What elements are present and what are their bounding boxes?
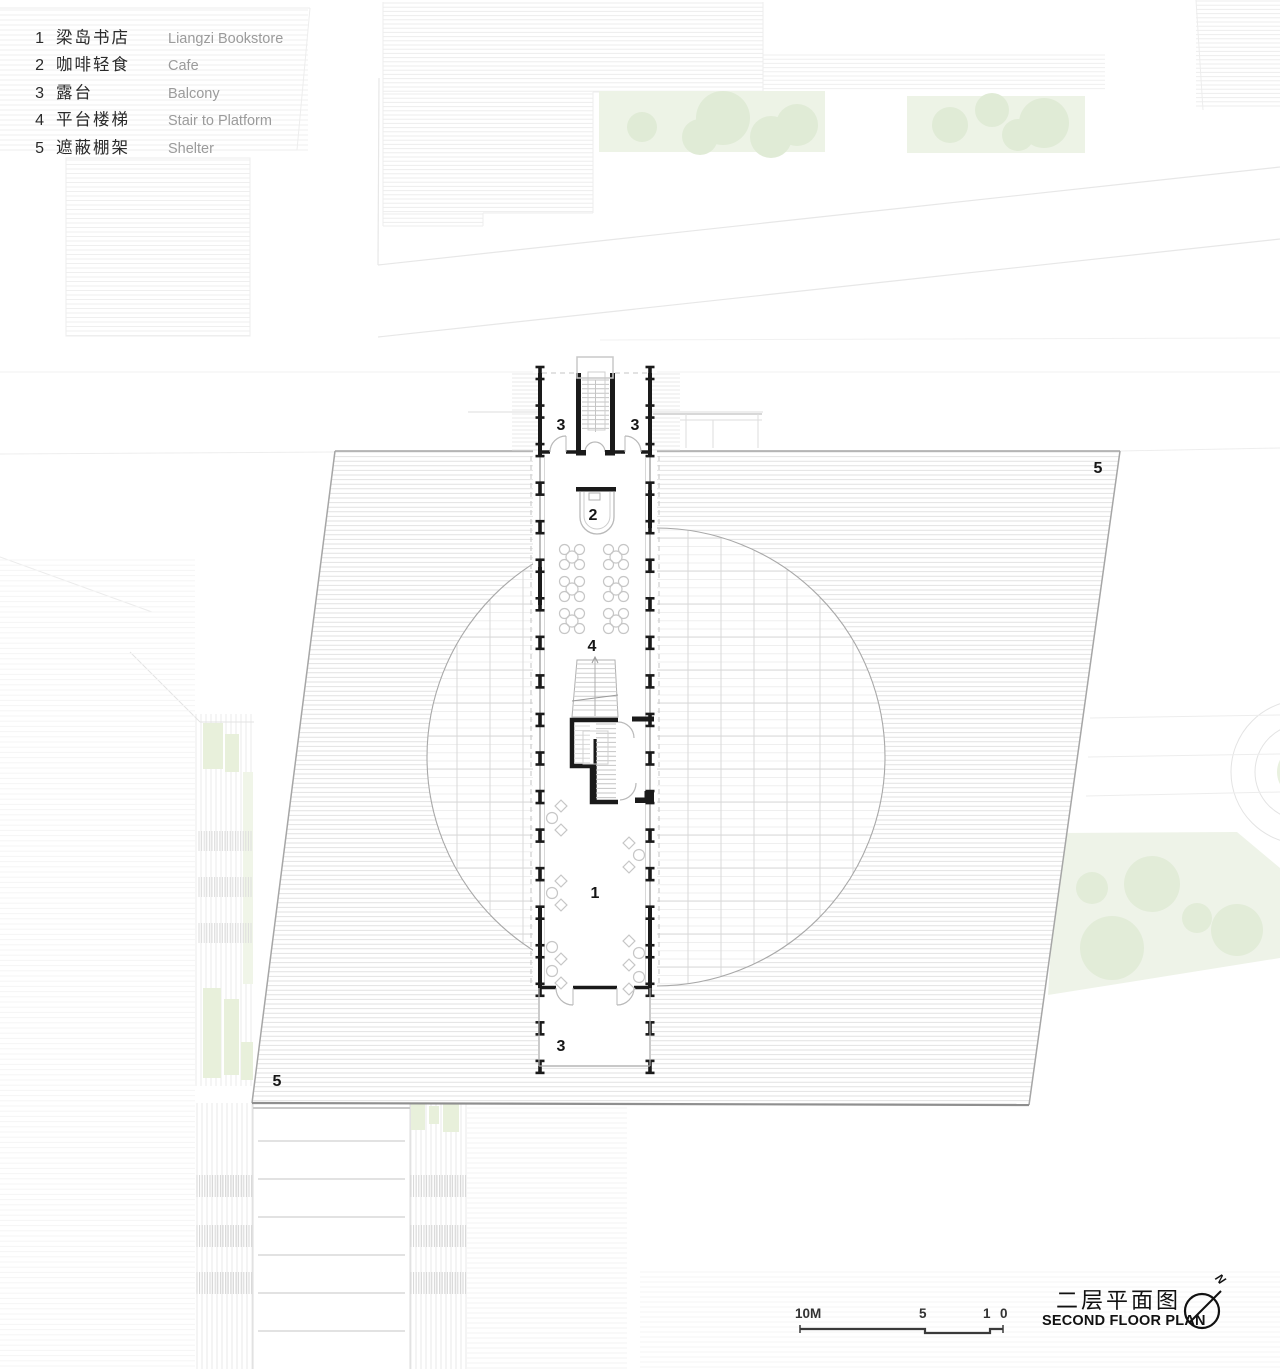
platform-stair (572, 657, 618, 717)
legend-item-english: Cafe (168, 58, 199, 74)
plan-label-2: 2 (589, 507, 598, 525)
legend-item-english: Liangzi Bookstore (168, 31, 283, 47)
legend-item-english: Shelter (168, 141, 214, 157)
plan-label-3: 3 (557, 1038, 566, 1056)
plan-label-5: 5 (273, 1073, 282, 1091)
scale-label-5: 5 (919, 1306, 927, 1321)
legend-item-chinese: 露台 (56, 79, 168, 103)
legend-item-chinese: 梁岛书店 (56, 24, 168, 48)
legend-item-chinese: 遮蔽棚架 (56, 134, 168, 158)
legend-item: 3露台Balcony (26, 79, 326, 106)
legend-item-number: 3 (26, 85, 44, 103)
floor-plan-page: 1梁岛书店Liangzi Bookstore2咖啡轻食Cafe3露台Balcon… (0, 0, 1280, 1369)
drawing-title-chinese: 二层平面图 (1056, 1283, 1181, 1315)
legend-item-english: Stair to Platform (168, 113, 272, 129)
legend-item-chinese: 平台楼梯 (56, 106, 168, 130)
plan-label-3: 3 (557, 417, 566, 435)
plan-label-1: 1 (591, 885, 600, 903)
legend-item: 5遮蔽棚架Shelter (26, 134, 326, 161)
scale-label-1: 1 (983, 1306, 991, 1321)
legend-item-english: Balcony (168, 86, 220, 102)
plan-label-4: 4 (588, 638, 597, 656)
plan-label-3: 3 (631, 417, 640, 435)
legend-item: 2咖啡轻食Cafe (26, 51, 326, 78)
legend-item-chinese: 咖啡轻食 (56, 51, 168, 75)
floor-plan-drawing (0, 0, 1280, 1369)
drawing-title-english: SECOND FLOOR PLAN (1042, 1313, 1206, 1329)
legend-item: 1梁岛书店Liangzi Bookstore (26, 24, 326, 51)
legend-item-number: 1 (26, 30, 44, 48)
legend-item: 4平台楼梯Stair to Platform (26, 106, 326, 133)
legend-item-number: 5 (26, 140, 44, 158)
legend-item-number: 2 (26, 57, 44, 75)
scale-label-0: 0 (1000, 1306, 1008, 1321)
plan-label-5: 5 (1094, 460, 1103, 478)
legend: 1梁岛书店Liangzi Bookstore2咖啡轻食Cafe3露台Balcon… (26, 24, 326, 161)
legend-item-number: 4 (26, 112, 44, 130)
scale-label-10m: 10M (795, 1306, 821, 1321)
